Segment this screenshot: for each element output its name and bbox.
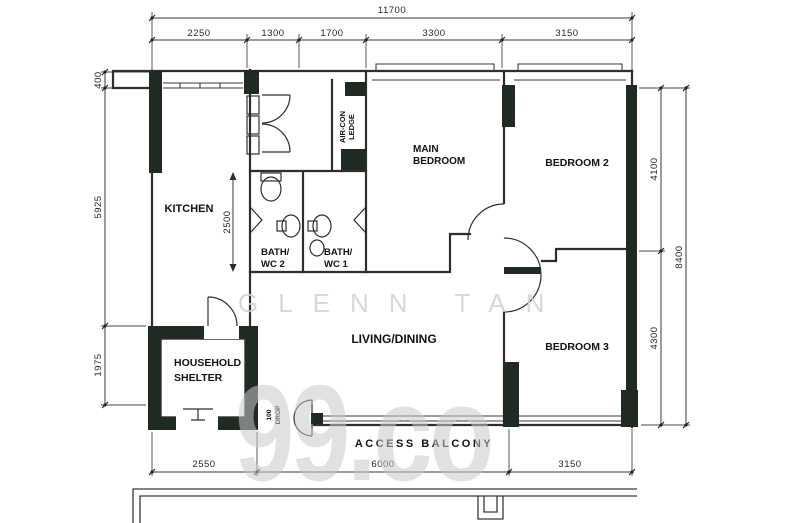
dim-left-1975: 1975 <box>93 353 104 376</box>
label-aircon-line2: LEDGE <box>347 114 356 140</box>
shelter-door <box>208 297 237 326</box>
label-bath2-line2: WC 2 <box>261 259 285 270</box>
dim-left-400: 400 <box>93 71 104 88</box>
label-bath1-line2: WC 1 <box>324 259 348 270</box>
toilet-bath2 <box>261 173 281 201</box>
floor-plan-image: 11700 2250 1300 1700 3300 3150 400 5925 … <box>0 0 800 523</box>
bowl-bath1 <box>310 240 324 256</box>
label-main-bedroom-line1: MAIN <box>413 144 439 155</box>
dim-left-5925: 5925 <box>93 195 104 218</box>
label-bath2-line1: BATH/ <box>261 247 290 258</box>
dim-top-3150: 3150 <box>555 28 578 39</box>
bath1-door <box>354 207 366 233</box>
dim-right-4300: 4300 <box>649 326 660 349</box>
entry-cabinet <box>247 96 259 154</box>
dim-inner-2500: 2500 <box>222 210 233 233</box>
label-aircon-line1: AIR-CON <box>338 111 347 143</box>
dim-top-2250: 2250 <box>187 28 210 39</box>
floor-plan-svg: 11700 2250 1300 1700 3300 3150 400 5925 … <box>0 0 800 523</box>
dim-total-width: 11700 <box>378 5 406 16</box>
label-kitchen: KITCHEN <box>165 203 214 215</box>
dim-top-1700: 1700 <box>320 28 343 39</box>
basin-bath1 <box>308 215 331 237</box>
watermark-brand: 99.co <box>235 356 491 509</box>
dim-total-height: 8400 <box>674 245 685 268</box>
dim-bottom-3150: 3150 <box>558 459 581 470</box>
main-bedroom-door <box>468 204 504 240</box>
dim-top-3300: 3300 <box>422 28 445 39</box>
label-main-bedroom-line2: BEDROOM <box>413 156 465 167</box>
label-living-dining: LIVING/DINING <box>351 332 436 346</box>
label-bath1-line1: BATH/ <box>324 247 353 258</box>
bath2-door <box>250 207 262 233</box>
kitchen-double-door <box>262 95 290 152</box>
dim-bottom-2550: 2550 <box>192 459 215 470</box>
label-shelter-line2: SHELTER <box>174 372 223 384</box>
label-bedroom2: BEDROOM 2 <box>545 157 609 169</box>
label-bedroom3: BEDROOM 3 <box>545 341 609 353</box>
dim-top-1300: 1300 <box>261 28 284 39</box>
dim-right-4100: 4100 <box>649 157 660 180</box>
watermark-agent-name: GLENN TAN <box>238 288 564 318</box>
label-shelter-line1: HOUSEHOLD <box>174 357 242 369</box>
basin-bath2 <box>277 215 300 237</box>
